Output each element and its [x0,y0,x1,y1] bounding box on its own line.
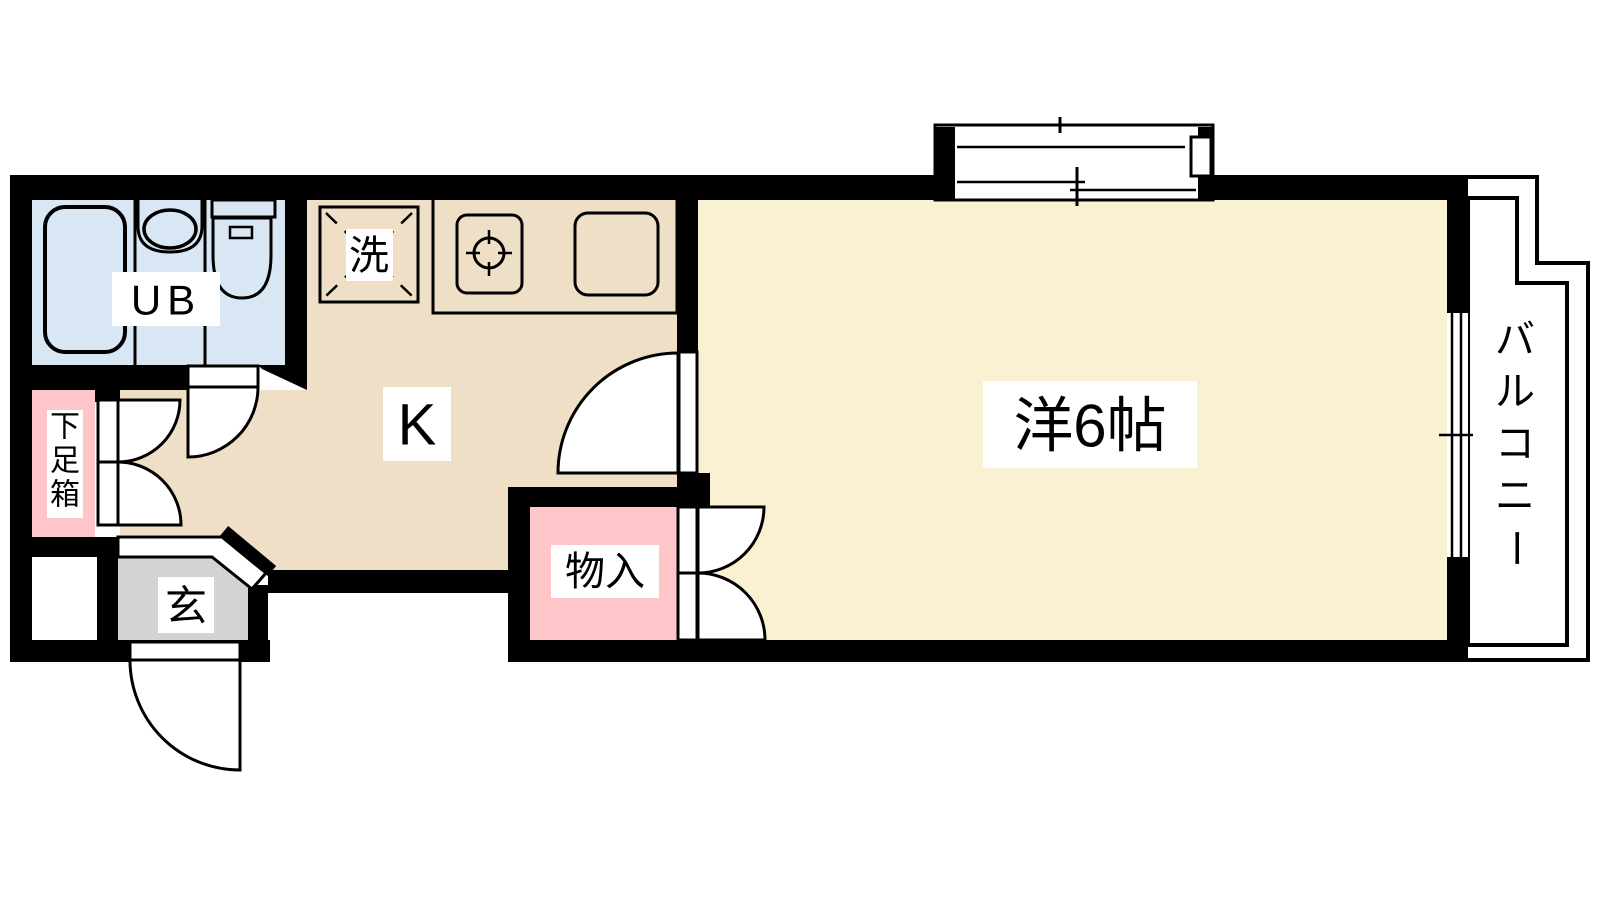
floor-plan-canvas: UB 洗 K 玄 物入 洋6帖 下 足 箱 バ ル コ ニ ー [0,0,1600,900]
label-balcony-char-2: ル [1495,370,1535,414]
wall-entrance-left [97,557,118,642]
label-balcony-char-4: ニ [1495,474,1535,518]
floor-plan: UB 洗 K 玄 物入 洋6帖 下 足 箱 バ ル コ ニ ー [0,0,1600,900]
label-western-room: 洋6帖 [1013,393,1166,460]
wall-ub-right [285,175,307,365]
bay-window-end-box [1191,137,1211,176]
wall-top-left [10,175,935,200]
wall-entrance-right [248,585,268,642]
label-balcony-char-3: コ [1495,422,1535,466]
pipe-space-area [32,557,97,640]
wall-bottom-main [508,640,1447,662]
label-balcony-char-5: ー [1493,528,1537,568]
wall-storage-left [508,487,530,640]
label-kitchen: K [398,393,437,458]
shoe-cabinet-door-leaf-bottom [98,462,118,525]
label-shoe-cabinet-char-1: 下 [50,411,80,444]
wall-kitchen-room-lower [677,473,710,507]
label-shoe-cabinet-char-3: 箱 [50,479,80,512]
label-unit-bath: UB [131,277,201,324]
storage-door-leaf-bottom [678,573,697,640]
label-shoe-cabinet-char-2: 足 [50,445,80,478]
wall-below-shoe [32,537,118,557]
label-entrance: 玄 [165,583,207,630]
wall-kitchen-bottom [268,570,508,593]
label-storage: 物入 [565,550,645,594]
storage-door-leaf-top [678,507,697,573]
wall-left [10,175,32,662]
bay-window-pillar-left [935,127,955,200]
wall-room-right-upper [1447,175,1468,313]
shoe-cabinet-door-leaf-top [98,400,118,462]
wall-ub-bottom [10,365,188,390]
ub-door-leaf [188,366,258,387]
wall-top-right [1198,175,1456,200]
kitchen-room-door-leaf [679,352,697,473]
label-balcony-char-1: バ [1495,318,1535,362]
entrance-door-leaf [130,642,240,660]
wall-kitchen-room-upper [677,175,698,352]
label-washer: 洗 [349,234,389,278]
wall-room-right-lower [1447,557,1468,662]
bay-window [935,117,1213,206]
